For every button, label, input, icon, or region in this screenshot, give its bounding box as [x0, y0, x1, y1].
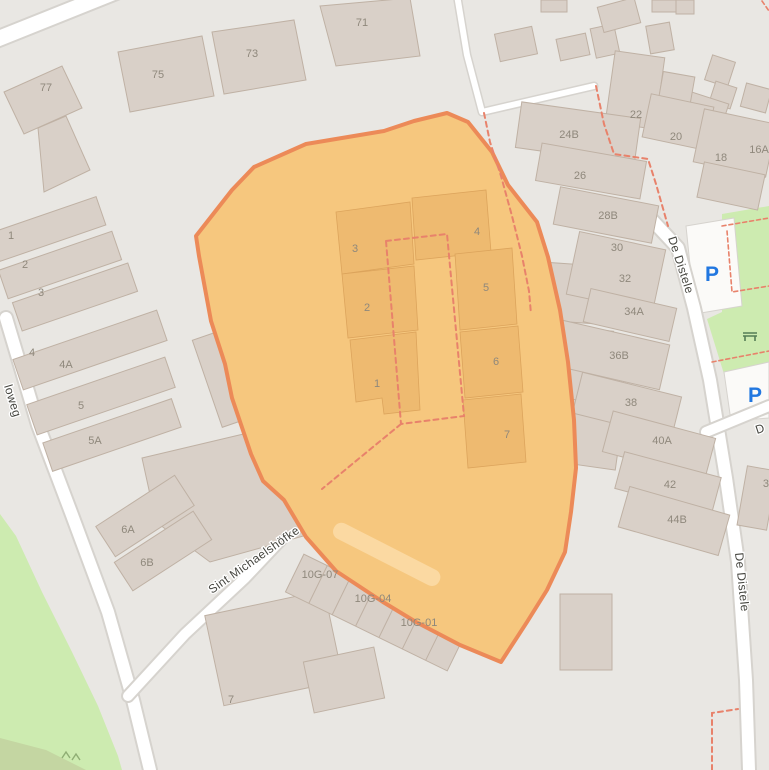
label-26: 26: [574, 170, 586, 182]
label-24b: 24B: [559, 129, 579, 141]
building: [676, 0, 694, 14]
parking-icon-upper: P: [705, 263, 719, 286]
label-6b: 6B: [140, 557, 153, 569]
unit-4-building: [412, 190, 491, 260]
label-3: 3: [38, 287, 44, 299]
label-10g01: 10G-01: [401, 617, 438, 629]
label-6a: 6A: [121, 524, 135, 536]
map-canvas[interactable]: P P 71 73 75 77 1 2 3 4 4A 5 5A 6A 6B 7 …: [0, 0, 769, 770]
label-5: 5: [78, 400, 84, 412]
building-71: [320, 0, 420, 66]
label-75: 75: [152, 69, 164, 81]
label-73: 73: [246, 48, 258, 60]
label-unit-3: 3: [352, 243, 358, 255]
unit-3-building: [336, 202, 414, 274]
unit-2-building: [342, 266, 418, 338]
label-unit-4: 4: [474, 226, 480, 238]
building-73: [212, 20, 306, 94]
unit-1-building: [350, 332, 420, 414]
label-10g07: 10G-07: [302, 569, 339, 581]
label-4: 4: [29, 347, 35, 359]
label-20: 20: [670, 131, 682, 143]
label-40a: 40A: [652, 435, 672, 447]
label-unit-5: 5: [483, 282, 489, 294]
label-44b: 44B: [667, 514, 687, 526]
label-5a: 5A: [88, 435, 102, 447]
label-36b: 36B: [609, 350, 629, 362]
label-4a: 4A: [59, 359, 73, 371]
label-42: 42: [664, 479, 676, 491]
parking-icon-lower: P: [748, 384, 762, 407]
label-10g04: 10G-04: [355, 593, 392, 605]
label-71: 71: [356, 17, 368, 29]
label-18: 18: [715, 152, 727, 164]
label-32: 32: [619, 273, 631, 285]
label-1: 1: [8, 230, 14, 242]
building: [541, 0, 567, 12]
label-16a: 16A: [749, 144, 769, 156]
building: [646, 22, 674, 54]
label-77: 77: [40, 82, 52, 94]
label-30: 30: [611, 242, 623, 254]
label-unit-6: 6: [493, 356, 499, 368]
label-2: 2: [22, 259, 28, 271]
label-unit-2: 2: [364, 302, 370, 314]
label-28b: 28B: [598, 210, 618, 222]
label-unit-7: 7: [504, 429, 510, 441]
label-unit-1: 1: [374, 378, 380, 390]
label-39: 39: [763, 478, 769, 490]
unit-6-building: [460, 326, 523, 398]
label-34a: 34A: [624, 306, 644, 318]
unit-7-building: [463, 394, 526, 468]
label-7-south: 7: [228, 694, 234, 706]
label-22: 22: [630, 109, 642, 121]
building: [560, 594, 612, 670]
map[interactable]: P P 71 73 75 77 1 2 3 4 4A 5 5A 6A 6B 7 …: [0, 0, 769, 770]
label-38: 38: [625, 397, 637, 409]
